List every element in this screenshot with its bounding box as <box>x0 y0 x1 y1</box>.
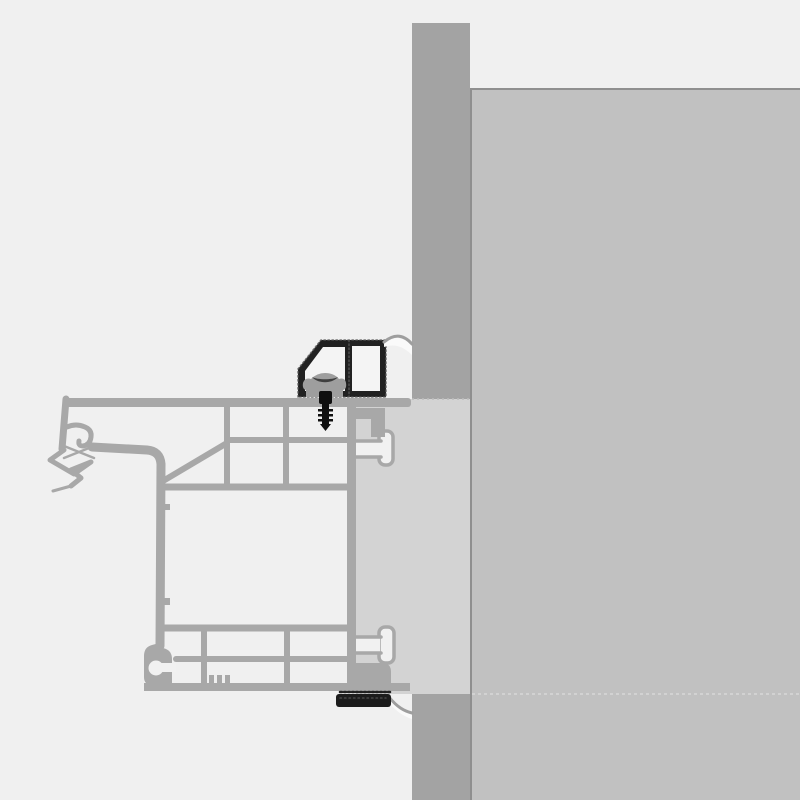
frame-left-edge <box>62 399 66 449</box>
bottom-seal-strip <box>336 692 391 707</box>
window-installation-section-diagram <box>0 0 800 800</box>
rib-tooth <box>225 675 230 683</box>
frame-top-bar <box>64 398 411 407</box>
wall-interior-face <box>470 88 800 800</box>
rib-tooth <box>217 675 222 683</box>
frame-bottom-right-foot <box>355 663 391 691</box>
top-bracket-finger <box>371 417 385 437</box>
technical-drawing-canvas <box>0 0 800 800</box>
rib-tooth <box>209 675 214 683</box>
